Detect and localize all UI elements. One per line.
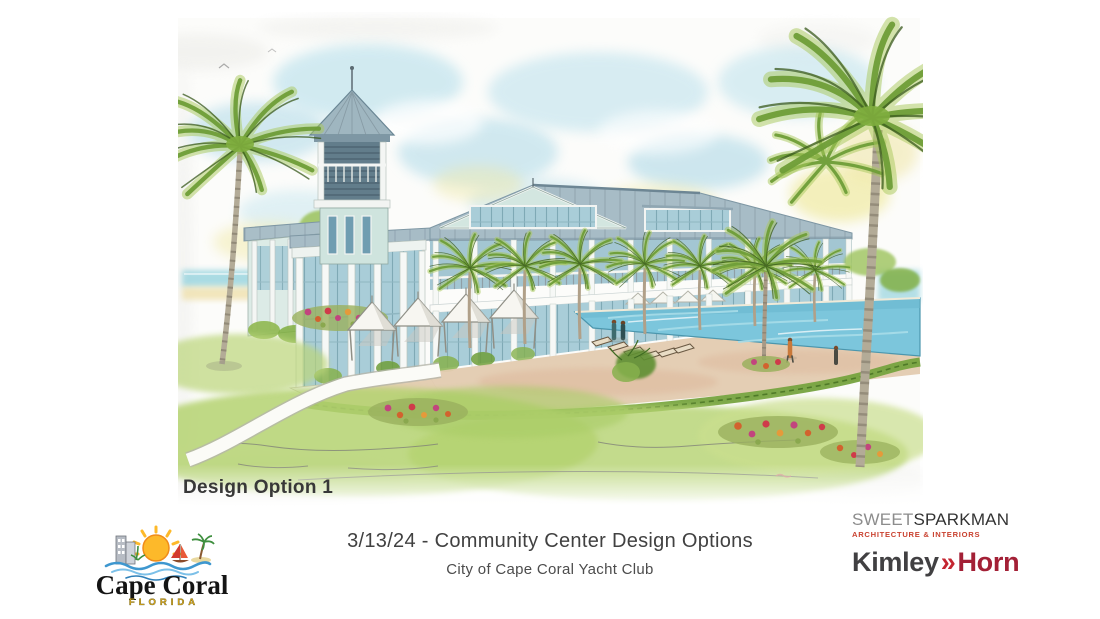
kimley-horn-word2: Horn bbox=[957, 547, 1019, 577]
sweet-sparkman-word2: SPARKMAN bbox=[913, 510, 1009, 529]
presentation-slide: Design Option 1 bbox=[0, 0, 1100, 619]
person bbox=[621, 321, 626, 338]
sweet-sparkman-word1: SWEET bbox=[852, 510, 913, 529]
kimley-horn-logo: Kimley»Horn bbox=[852, 549, 1027, 576]
rendering-image bbox=[178, 12, 923, 507]
flower-bed-center bbox=[368, 398, 468, 426]
kimley-horn-chevron-icon: » bbox=[939, 547, 958, 577]
cape-coral-state-label: FLORIDA bbox=[129, 597, 199, 608]
person bbox=[834, 346, 838, 363]
architectural-rendering bbox=[178, 12, 923, 507]
person bbox=[612, 320, 617, 338]
flower-bed-right bbox=[718, 416, 838, 448]
kimley-horn-word1: Kimley bbox=[852, 547, 939, 577]
design-option-label: Design Option 1 bbox=[183, 477, 333, 499]
sweet-sparkman-logo: SWEETSPARKMAN bbox=[852, 511, 1027, 528]
sweet-sparkman-tagline: ARCHITECTURE & INTERIORS bbox=[852, 531, 1027, 539]
consultant-logos: SWEETSPARKMAN ARCHITECTURE & INTERIORS K… bbox=[852, 511, 1027, 576]
